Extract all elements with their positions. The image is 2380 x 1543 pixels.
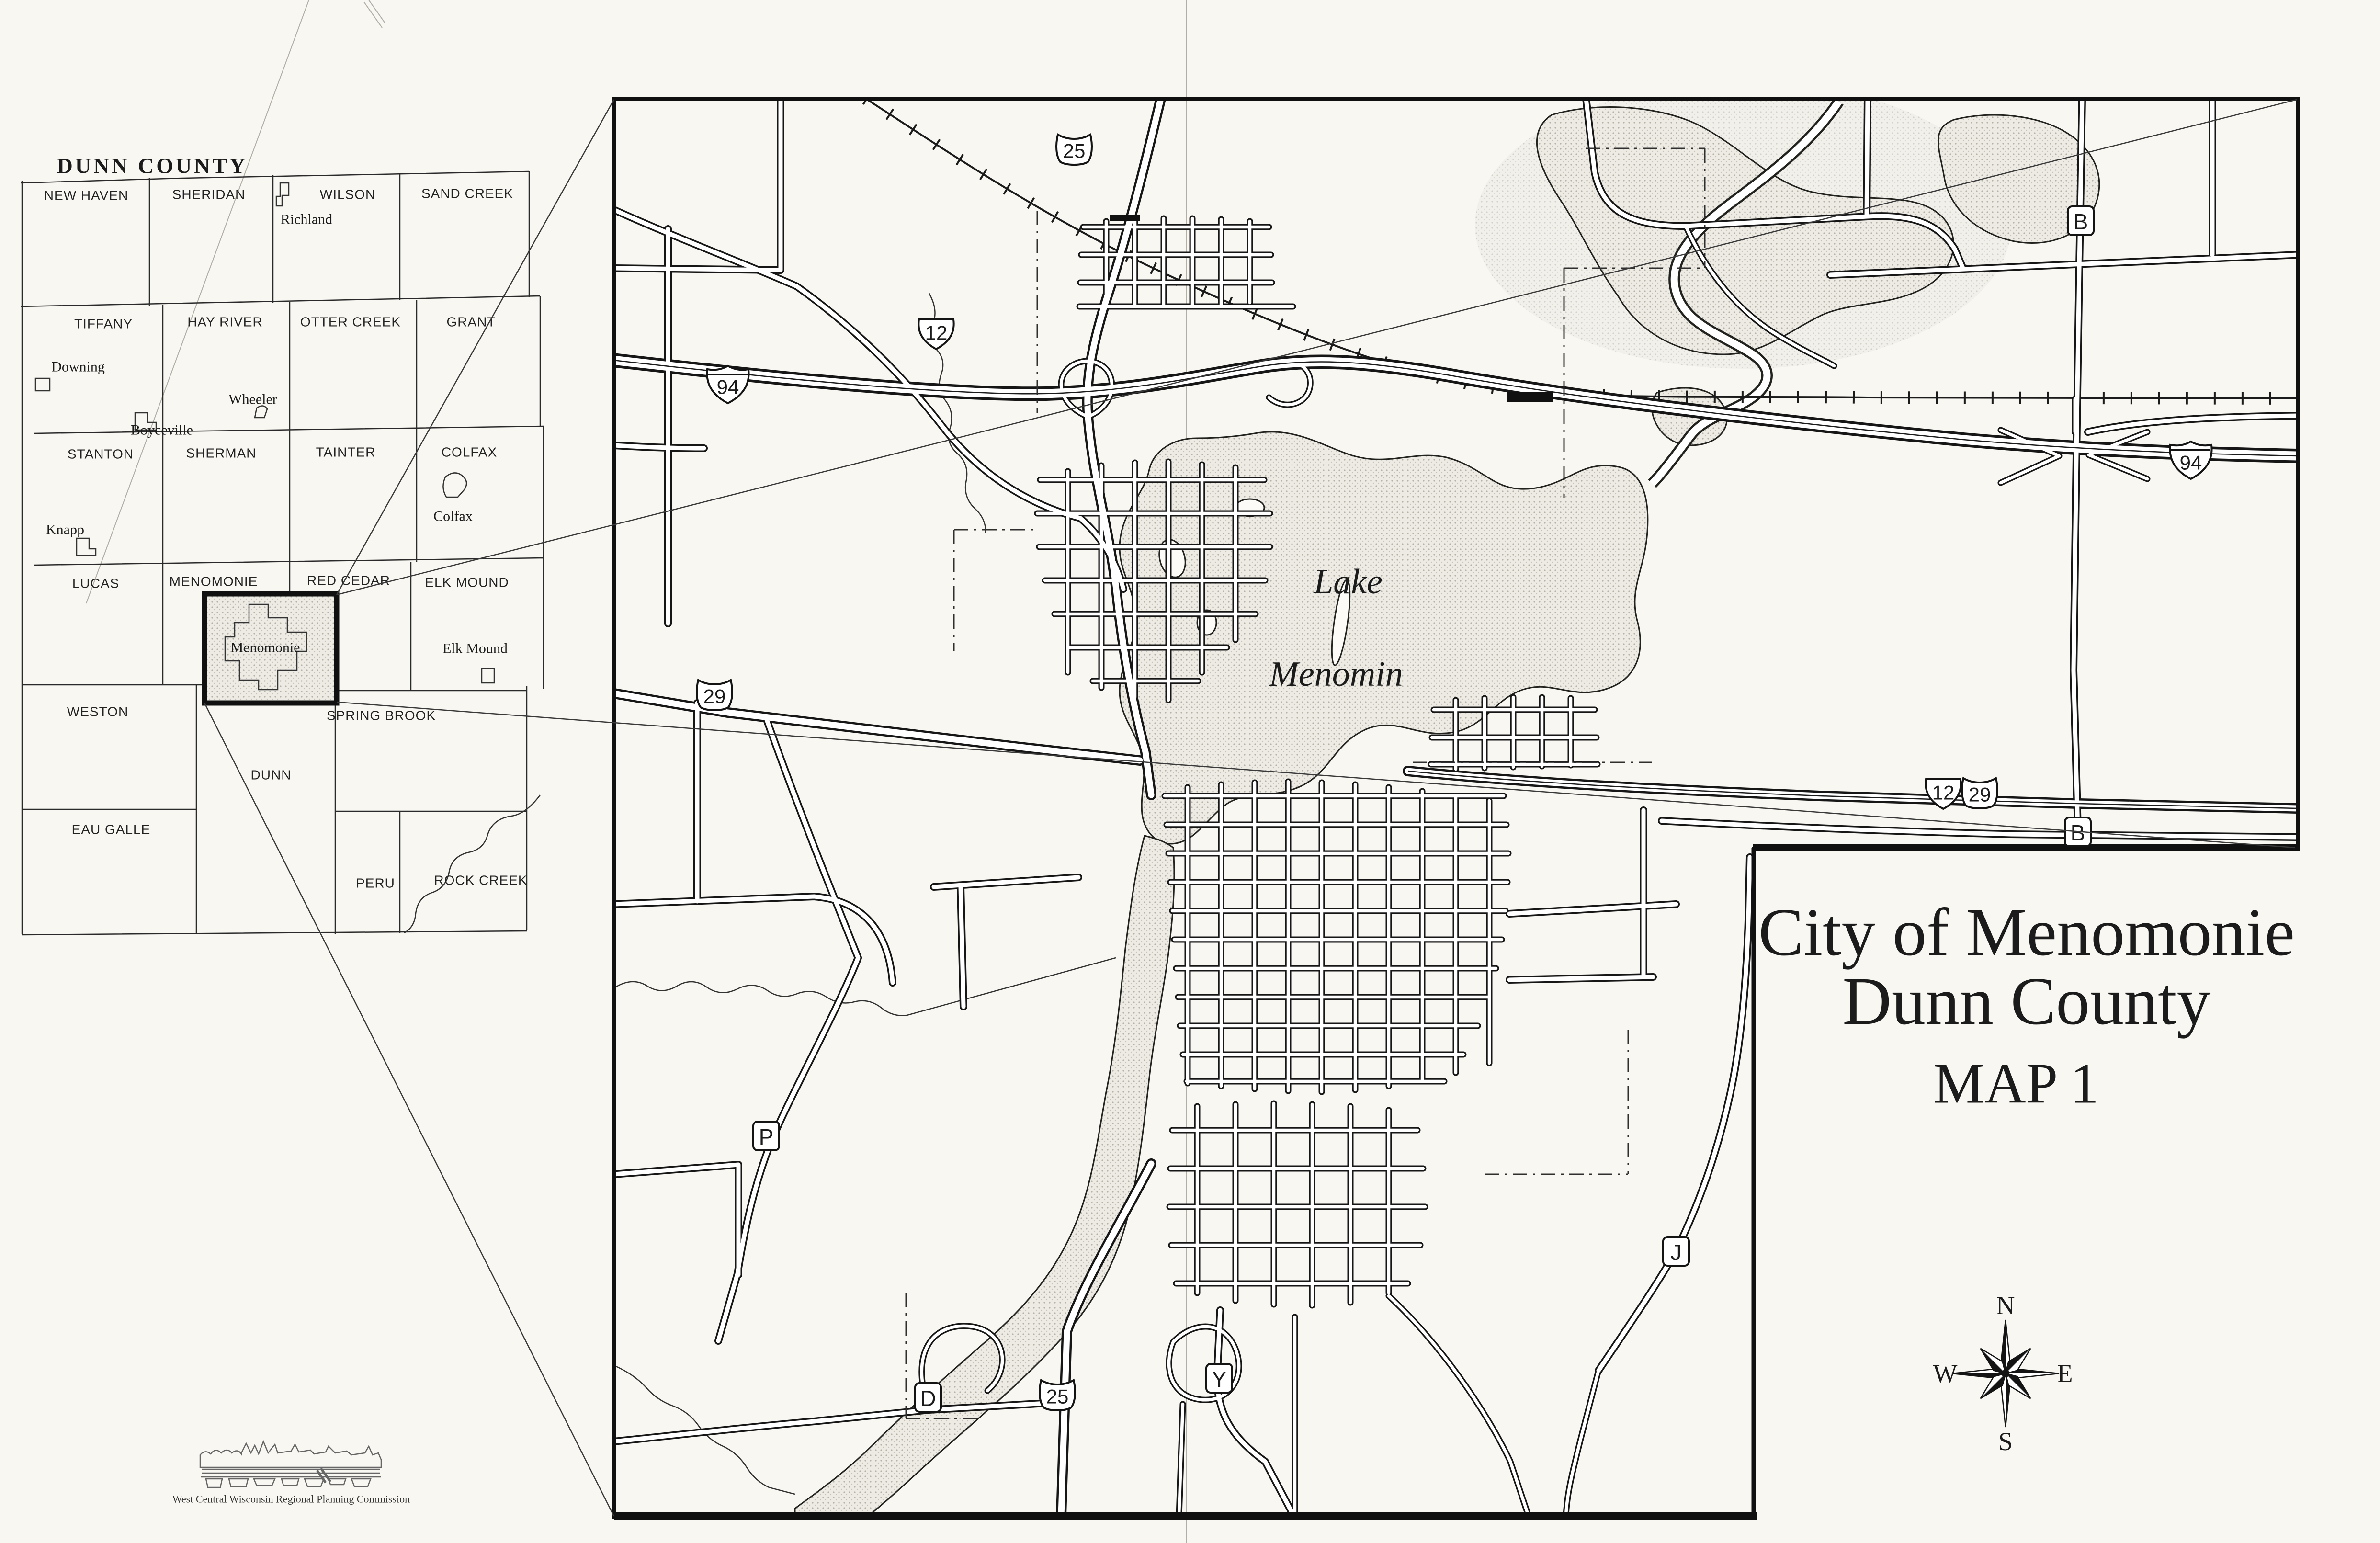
us-route-shield-12: 12 bbox=[918, 319, 953, 349]
compass-rose: N S E W bbox=[1933, 1291, 2073, 1456]
interstate-shield-94-west: 94 bbox=[707, 366, 748, 403]
svg-text:Lake: Lake bbox=[1313, 562, 1383, 601]
svg-text:OTTER CREEK: OTTER CREEK bbox=[300, 315, 401, 329]
map-sheet: DUNN COUNTY NEW HAVEN SHERIDAN WILSON SA… bbox=[0, 0, 2380, 1543]
svg-text:TIFFANY: TIFFANY bbox=[74, 317, 133, 331]
svg-text:94: 94 bbox=[717, 376, 739, 398]
state-route-shield-25-south: 25 bbox=[1040, 1380, 1075, 1410]
svg-text:MENOMONIE: MENOMONIE bbox=[170, 574, 258, 589]
svg-text:Boyceville: Boyceville bbox=[131, 422, 193, 438]
svg-text:Knapp: Knapp bbox=[46, 522, 84, 538]
svg-text:TAINTER: TAINTER bbox=[316, 445, 376, 460]
svg-text:Elk Mound: Elk Mound bbox=[442, 641, 508, 657]
svg-text:NEW HAVEN: NEW HAVEN bbox=[44, 188, 129, 203]
map-title-line1: City of Menomonie bbox=[1758, 894, 2295, 970]
svg-text:WESTON: WESTON bbox=[67, 704, 128, 719]
svg-text:SHERIDAN: SHERIDAN bbox=[172, 187, 246, 202]
map-title-line2: Dunn County bbox=[1842, 963, 2210, 1039]
inset-township-labels: NEW HAVEN SHERIDAN WILSON SAND CREEK TIF… bbox=[44, 186, 528, 891]
svg-text:D: D bbox=[920, 1386, 936, 1411]
svg-text:P: P bbox=[759, 1124, 774, 1149]
svg-text:ROCK CREEK: ROCK CREEK bbox=[434, 873, 527, 888]
svg-text:J: J bbox=[1671, 1240, 1682, 1265]
svg-text:Colfax: Colfax bbox=[433, 509, 473, 524]
map-title-line3: MAP 1 bbox=[1933, 1052, 2099, 1115]
svg-text:SHERMAN: SHERMAN bbox=[186, 446, 256, 461]
svg-text:ELK MOUND: ELK MOUND bbox=[425, 575, 509, 590]
svg-text:LUCAS: LUCAS bbox=[72, 576, 119, 591]
svg-text:25: 25 bbox=[1063, 140, 1086, 162]
county-road-marker-B-north: B bbox=[2068, 206, 2094, 235]
svg-text:RED CEDAR: RED CEDAR bbox=[307, 573, 390, 588]
svg-text:Wheeler: Wheeler bbox=[228, 392, 277, 408]
county-inset: DUNN COUNTY NEW HAVEN SHERIDAN WILSON SA… bbox=[21, 154, 544, 935]
county-road-marker-J: J bbox=[1663, 1237, 1689, 1266]
svg-text:Menomin: Menomin bbox=[1269, 655, 1403, 694]
svg-text:94: 94 bbox=[2180, 452, 2202, 474]
state-route-shield-25: 25 bbox=[1056, 135, 1092, 165]
svg-text:COLFAX: COLFAX bbox=[442, 445, 497, 460]
svg-text:Y: Y bbox=[1212, 1367, 1227, 1392]
compass-east-label: E bbox=[2057, 1359, 2073, 1388]
county-road-marker-P: P bbox=[753, 1122, 779, 1150]
county-road-marker-Y: Y bbox=[1206, 1364, 1232, 1393]
inset-creek bbox=[404, 795, 540, 933]
compass-south-label: S bbox=[1998, 1427, 2013, 1456]
svg-text:SPRING BROOK: SPRING BROOK bbox=[327, 708, 436, 723]
wcwrpc-logo-graphic bbox=[200, 1441, 381, 1487]
svg-text:Richland: Richland bbox=[281, 212, 332, 227]
svg-text:DUNN: DUNN bbox=[251, 768, 292, 783]
svg-text:Downing: Downing bbox=[51, 359, 105, 375]
svg-text:PERU: PERU bbox=[356, 876, 395, 891]
wcwrpc-logo: West Central Wisconsin Regional Planning… bbox=[172, 1441, 410, 1505]
inset-township-grid bbox=[21, 171, 544, 935]
interstate-shield-94-east: 94 bbox=[2170, 442, 2211, 479]
county-road-marker-D: D bbox=[915, 1383, 941, 1412]
main-city-map: Lake Menomin 25 12 94 94 29 12 29 25 B B… bbox=[613, 81, 2298, 1517]
svg-text:B: B bbox=[2074, 209, 2088, 234]
inset-title: DUNN COUNTY bbox=[57, 154, 248, 178]
wcwrpc-logo-caption: West Central Wisconsin Regional Planning… bbox=[172, 1493, 410, 1505]
svg-text:WILSON: WILSON bbox=[320, 187, 375, 202]
state-route-shield-29-west: 29 bbox=[697, 680, 732, 710]
compass-west-label: W bbox=[1933, 1359, 1958, 1388]
svg-text:STANTON: STANTON bbox=[68, 447, 134, 462]
svg-text:SAND CREEK: SAND CREEK bbox=[421, 186, 513, 201]
svg-text:12: 12 bbox=[925, 322, 948, 344]
svg-text:29: 29 bbox=[703, 685, 726, 708]
svg-text:25: 25 bbox=[1046, 1385, 1069, 1408]
svg-text:Menomonie: Menomonie bbox=[231, 640, 300, 656]
svg-text:EAU GALLE: EAU GALLE bbox=[72, 822, 151, 837]
title-block: City of Menomonie Dunn County MAP 1 bbox=[1758, 894, 2295, 1115]
compass-north-label: N bbox=[1996, 1291, 2015, 1320]
svg-text:B: B bbox=[2071, 820, 2085, 845]
svg-text:GRANT: GRANT bbox=[447, 315, 496, 329]
svg-text:12: 12 bbox=[1932, 782, 1955, 804]
svg-text:29: 29 bbox=[1969, 783, 1991, 806]
svg-text:HAY RIVER: HAY RIVER bbox=[187, 315, 262, 329]
state-route-shield-29-east: 29 bbox=[1962, 778, 1997, 808]
